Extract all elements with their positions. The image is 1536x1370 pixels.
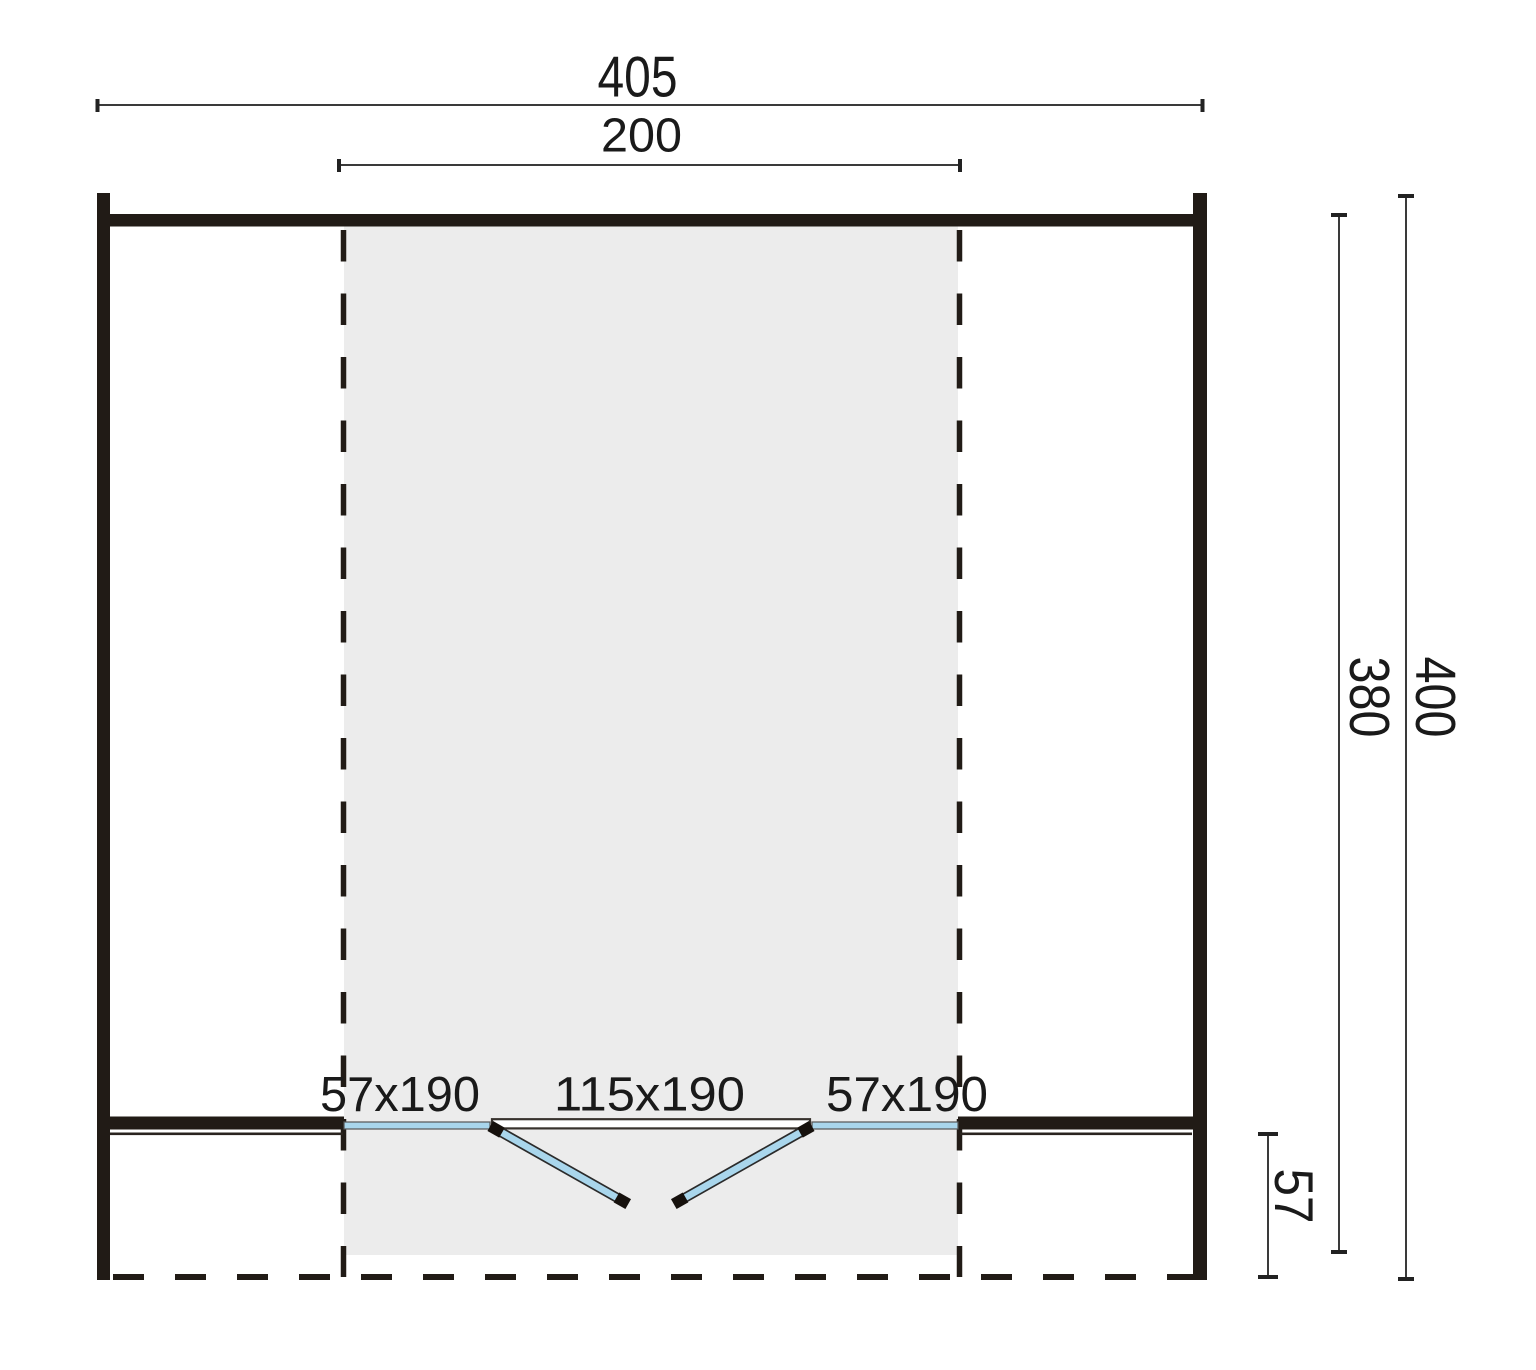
svg-text:57x190: 57x190 [826, 1068, 988, 1122]
svg-text:200: 200 [601, 110, 682, 163]
svg-text:400: 400 [1403, 657, 1467, 738]
svg-text:115x190: 115x190 [554, 1068, 745, 1122]
svg-text:57x190: 57x190 [320, 1068, 480, 1122]
svg-text:380: 380 [1337, 657, 1401, 738]
svg-text:405: 405 [598, 46, 678, 110]
svg-text:57: 57 [1263, 1169, 1324, 1224]
